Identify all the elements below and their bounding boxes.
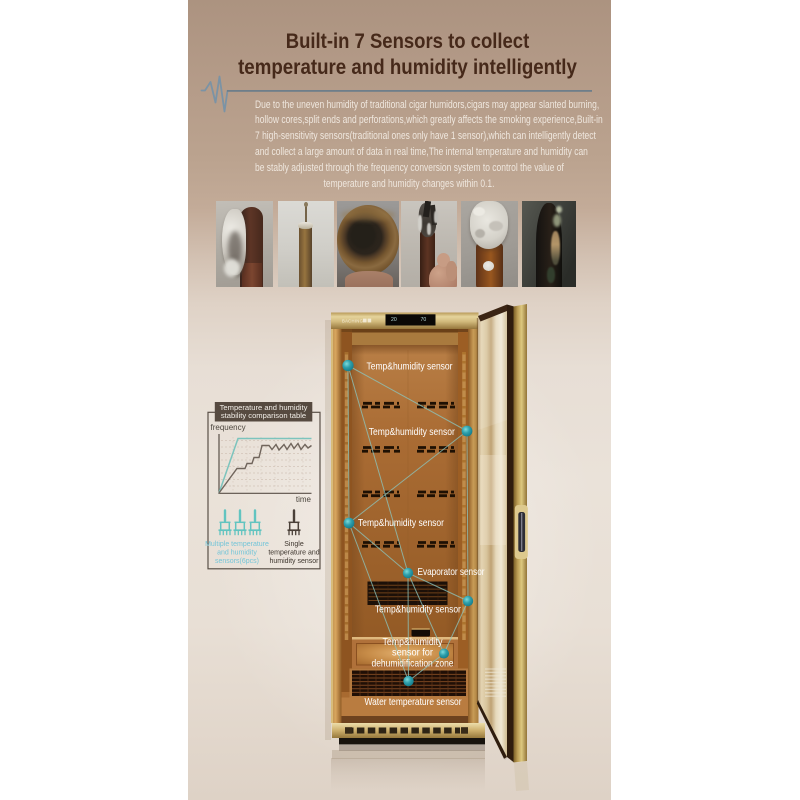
svg-text:70: 70 bbox=[421, 317, 427, 323]
svg-text:Temp&humidity sensor: Temp&humidity sensor bbox=[367, 362, 453, 373]
svg-text:Temp&humidity: Temp&humidity bbox=[383, 637, 444, 648]
svg-text:sensors(6pcs): sensors(6pcs) bbox=[215, 558, 259, 565]
svg-text:Temp&humidity sensor: Temp&humidity sensor bbox=[375, 604, 461, 615]
svg-text:Temp&humidity sensor: Temp&humidity sensor bbox=[358, 518, 444, 529]
svg-text:Evaporator sensor: Evaporator sensor bbox=[418, 567, 485, 578]
svg-text:humidity sensor: humidity sensor bbox=[269, 558, 319, 565]
svg-text:sensor for: sensor for bbox=[392, 648, 434, 659]
svg-text:frequency: frequency bbox=[211, 423, 246, 432]
svg-text:20: 20 bbox=[391, 317, 397, 323]
svg-text:Temp&humidity sensor: Temp&humidity sensor bbox=[369, 427, 455, 438]
svg-text:BACHING: BACHING bbox=[342, 319, 363, 324]
svg-text:temperature and: temperature and bbox=[268, 550, 319, 557]
svg-text:stability comparison table: stability comparison table bbox=[221, 411, 306, 420]
svg-text:dehumidification zone: dehumidification zone bbox=[372, 658, 454, 669]
svg-text:Water temperature sensor: Water temperature sensor bbox=[365, 697, 462, 708]
svg-text:Single: Single bbox=[284, 541, 304, 548]
svg-text:Multiple temperature: Multiple temperature bbox=[205, 541, 269, 548]
svg-text:time: time bbox=[296, 495, 312, 504]
svg-text:and humidity: and humidity bbox=[217, 550, 257, 557]
